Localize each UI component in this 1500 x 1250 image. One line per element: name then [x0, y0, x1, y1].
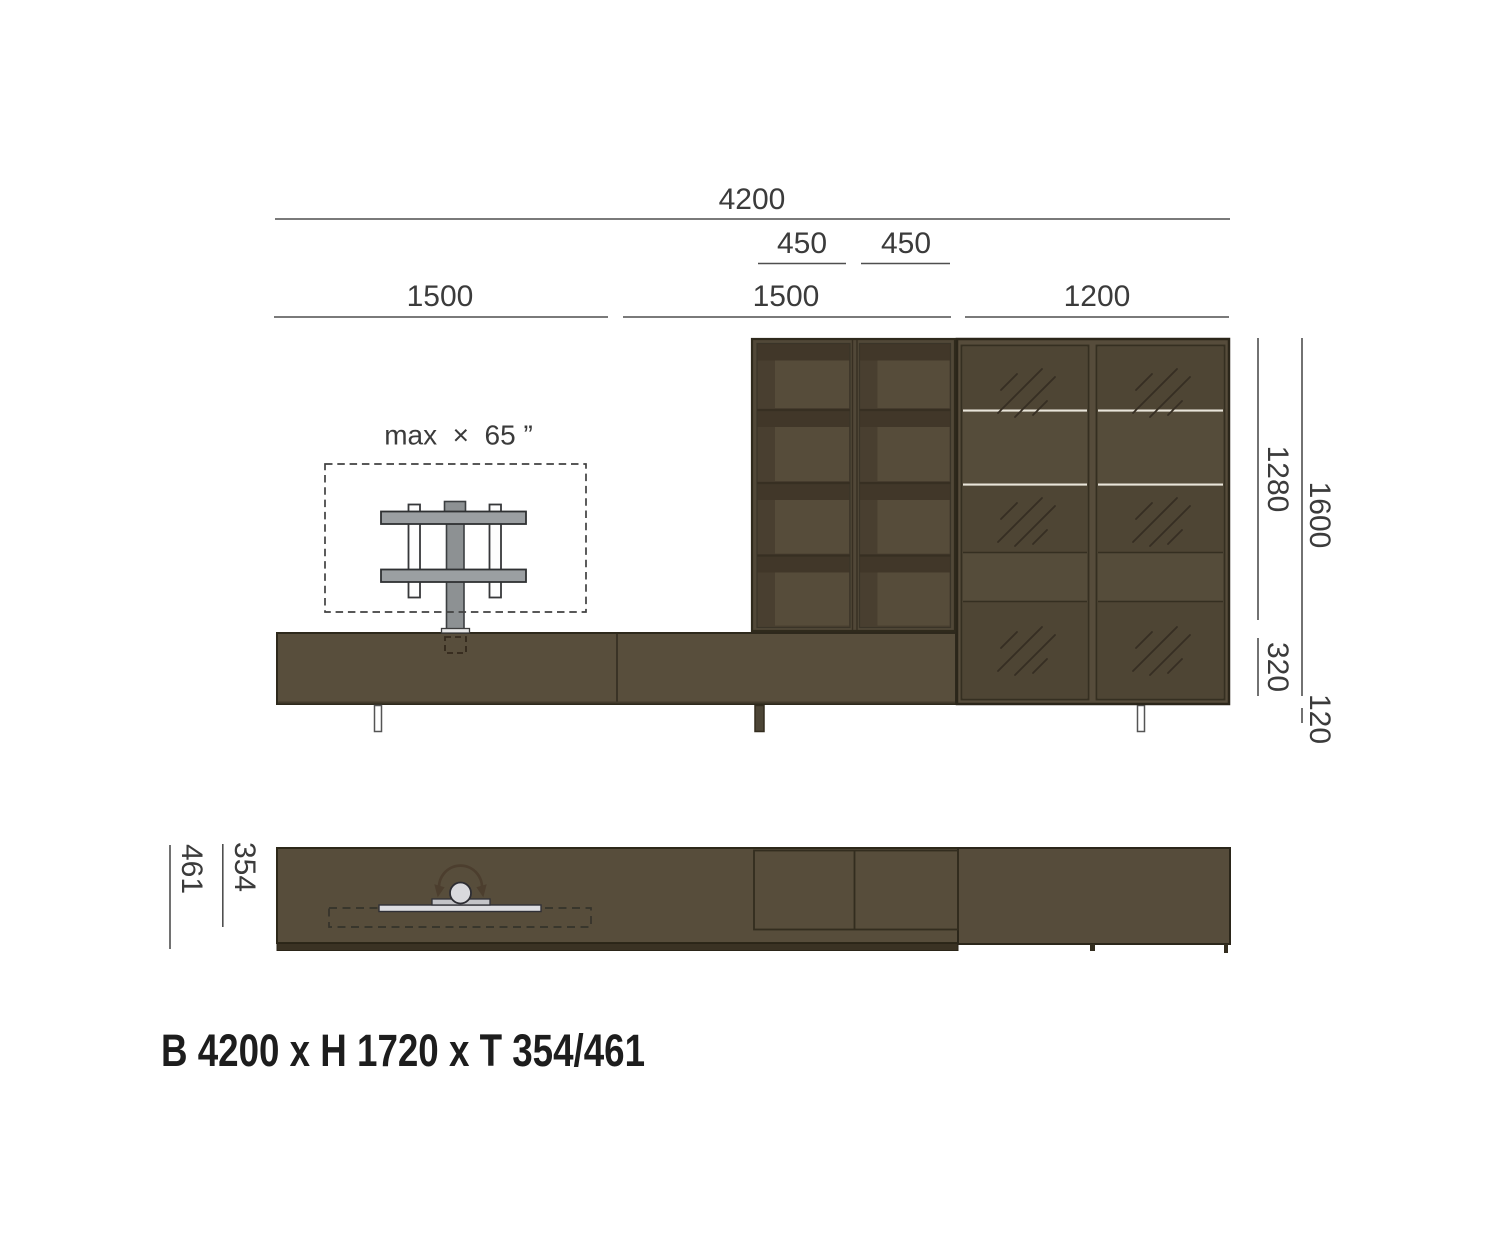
- svg-text:1200: 1200: [1064, 280, 1131, 313]
- svg-text:1500: 1500: [407, 280, 474, 313]
- svg-text:461: 461: [175, 844, 208, 894]
- svg-text:1500: 1500: [753, 280, 820, 313]
- svg-text:120: 120: [1303, 694, 1336, 744]
- svg-text:max × 65 ”: max × 65 ”: [384, 420, 533, 451]
- svg-text:1280: 1280: [1261, 446, 1294, 513]
- svg-text:4200: 4200: [719, 183, 786, 216]
- svg-text:354: 354: [228, 842, 261, 892]
- svg-text:450: 450: [777, 227, 827, 260]
- svg-text:320: 320: [1261, 642, 1294, 692]
- svg-text:450: 450: [881, 227, 931, 260]
- svg-text:B 4200 x H 1720 x T 354/461: B 4200 x H 1720 x T 354/461: [161, 1025, 645, 1076]
- svg-text:1600: 1600: [1303, 482, 1336, 549]
